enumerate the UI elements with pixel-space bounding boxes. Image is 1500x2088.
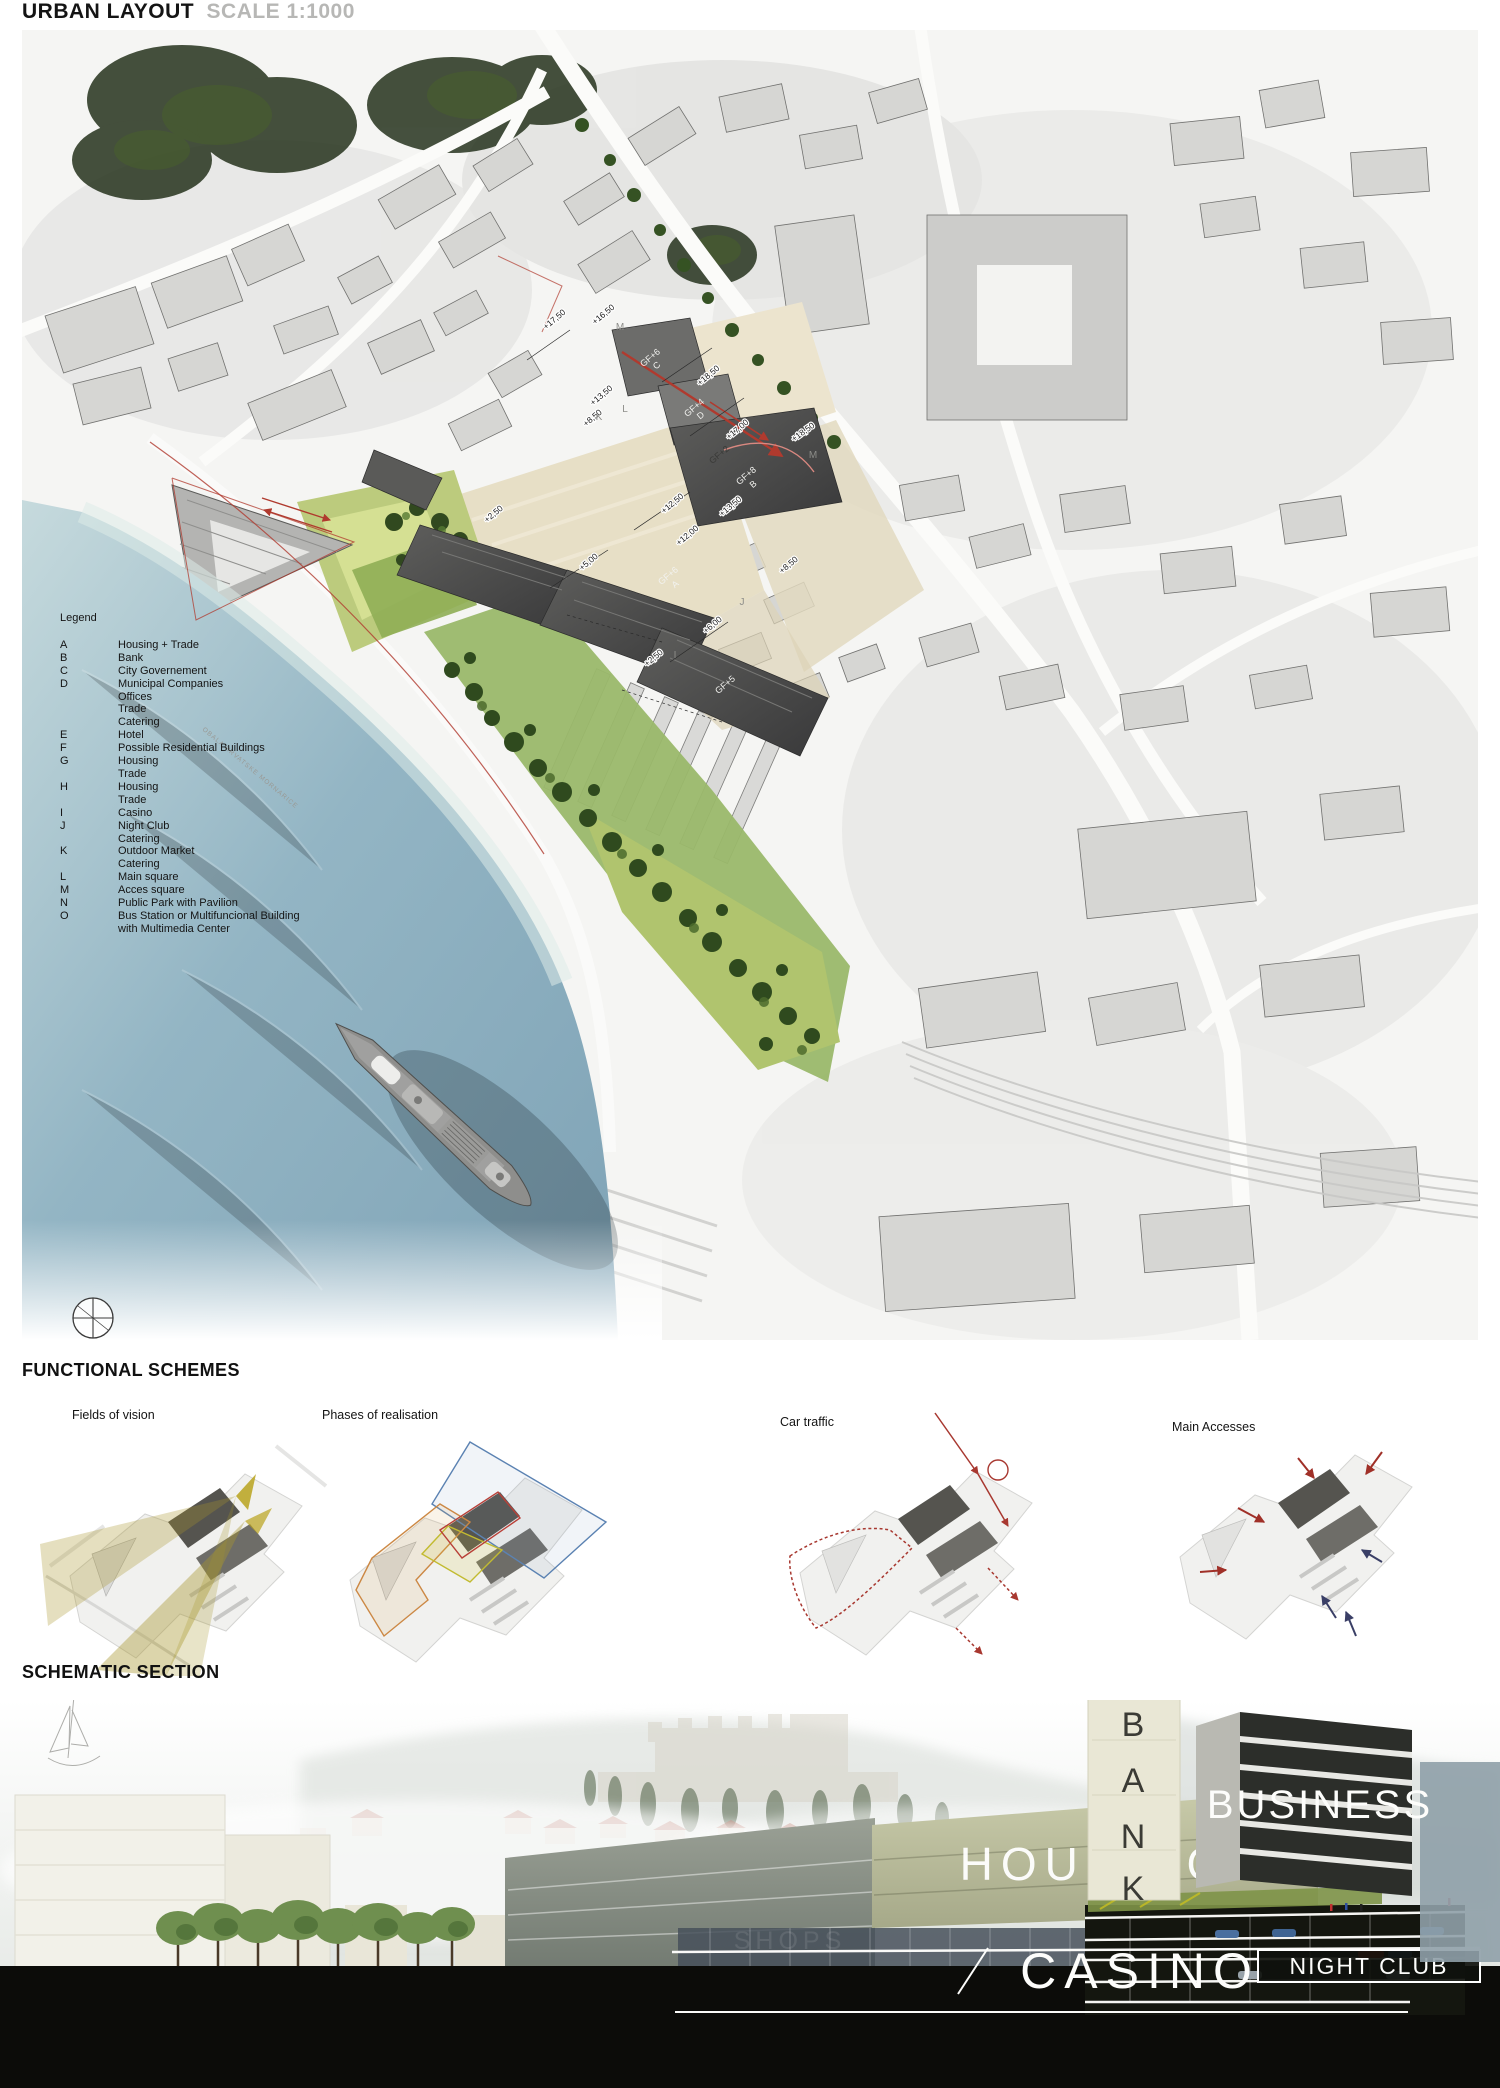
scale-label: SCALE 1:1000	[207, 0, 355, 23]
legend-row: Trade	[60, 768, 340, 781]
legend-row: EHotel	[60, 729, 340, 742]
legend-row: GHousing	[60, 755, 340, 768]
legend-row: ICasino	[60, 807, 340, 820]
scheme-fields-of-vision	[40, 1426, 340, 1676]
legend-row: MAcces square	[60, 884, 340, 897]
compass-icon	[73, 1298, 113, 1338]
bank-letter: A	[1122, 1762, 1145, 1800]
legend-row: HHousing	[60, 781, 340, 794]
functional-schemes-heading: FUNCTIONAL SCHEMES	[22, 1360, 240, 1381]
legend-row: Catering	[60, 858, 340, 871]
legend-row: with Multimedia Center	[60, 923, 340, 936]
legend-row: Trade	[60, 794, 340, 807]
bank-letter: K	[1122, 1870, 1145, 1908]
bank-building: B A N K	[1088, 1700, 1180, 1908]
zone-letter: I	[674, 650, 677, 661]
legend-row: LMain square	[60, 871, 340, 884]
legend-row: FPossible Residential Buildings	[60, 742, 340, 755]
legend-row: KOutdoor Market	[60, 845, 340, 858]
legend-title: Legend	[60, 612, 340, 625]
casino-label: CASINO	[1020, 1943, 1260, 1999]
legend-row: OBus Station or Multifuncional Building	[60, 910, 340, 923]
scheme-main-accesses	[1130, 1412, 1460, 1662]
legend-row: Catering	[60, 716, 340, 729]
business-label: BUSINESS	[1207, 1783, 1433, 1827]
page-title: URBAN LAYOUT	[22, 0, 194, 23]
roundabout-symbol	[988, 1460, 1008, 1480]
scheme-car-traffic	[750, 1408, 1080, 1678]
zone-letter: K	[596, 412, 603, 423]
legend-row: Catering	[60, 833, 340, 846]
zone-letter: M	[616, 322, 624, 333]
zone-letter: M	[809, 450, 817, 461]
legend-row: BBank	[60, 652, 340, 665]
legend-row: Trade	[60, 703, 340, 716]
scheme-label-fields-of-vision: Fields of vision	[72, 1408, 155, 1422]
legend-row: JNight Club	[60, 820, 340, 833]
zone-letter: J	[740, 597, 745, 608]
legend-row: AHousing + Trade	[60, 639, 340, 652]
bank-letter: N	[1121, 1818, 1146, 1856]
scheme-phases-of-realisation	[310, 1420, 620, 1690]
schematic-section: SHOPS HOUSING	[0, 1700, 1500, 2088]
legend-row: Offices	[60, 691, 340, 704]
bank-letter: B	[1122, 1706, 1145, 1744]
legend-row: DMunicipal Companies	[60, 678, 340, 691]
zone-letter: L	[622, 404, 628, 415]
schematic-section-heading: SCHEMATIC SECTION	[22, 1662, 219, 1683]
board-header: URBAN LAYOUT SCALE 1:1000	[22, 0, 355, 26]
legend-row: CCity Governement	[60, 665, 340, 678]
legend-row: NPublic Park with Pavilion	[60, 897, 340, 910]
legend: Legend AHousing + Trade BBank CCity Gove…	[60, 612, 340, 936]
